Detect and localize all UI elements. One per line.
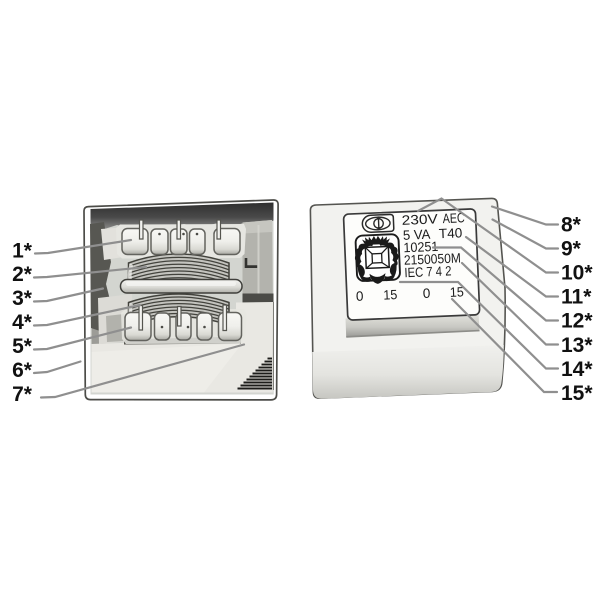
svg-text:0: 0: [423, 286, 431, 301]
svg-text:1*: 1*: [12, 239, 33, 262]
svg-text:8*: 8*: [561, 213, 582, 236]
svg-text:6*: 6*: [12, 359, 33, 382]
svg-text:13*: 13*: [561, 334, 593, 357]
svg-text:10*: 10*: [561, 262, 593, 285]
svg-text:5*: 5*: [12, 335, 33, 358]
svg-text:12*: 12*: [561, 310, 593, 333]
svg-text:230V: 230V: [401, 211, 438, 227]
svg-text:4*: 4*: [12, 311, 33, 334]
svg-text:0: 0: [356, 289, 364, 304]
svg-text:7*: 7*: [12, 383, 33, 406]
svg-text:9*: 9*: [561, 237, 582, 260]
svg-text:14*: 14*: [561, 358, 593, 381]
svg-text:15: 15: [383, 287, 398, 303]
svg-text:IEC 7 4 2: IEC 7 4 2: [404, 263, 452, 280]
svg-text:T40: T40: [439, 225, 463, 241]
svg-text:3*: 3*: [12, 287, 33, 310]
svg-text:11*: 11*: [561, 286, 592, 309]
svg-text:2*: 2*: [12, 263, 33, 286]
svg-text:15*: 15*: [561, 382, 593, 405]
